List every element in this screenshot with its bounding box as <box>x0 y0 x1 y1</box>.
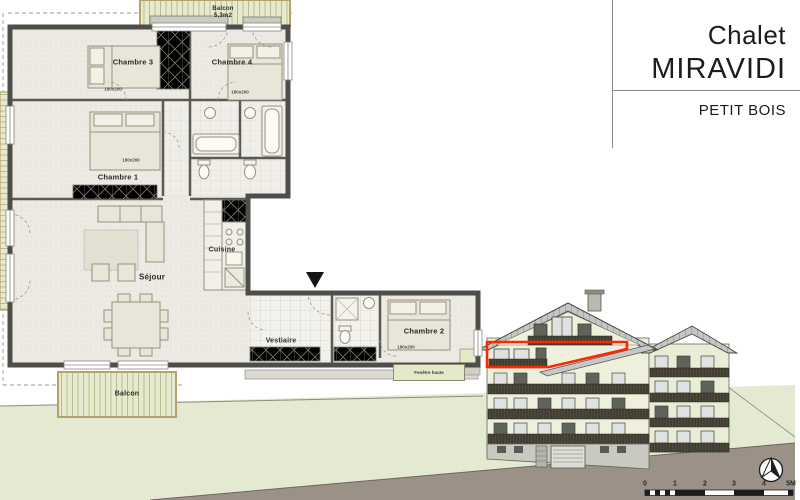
armchair <box>118 264 135 281</box>
title-block: Chalet MIRAVIDI <box>651 20 786 86</box>
balcony-bottom-label: Balcon <box>115 391 140 398</box>
title-unit: PETIT BOIS <box>699 102 786 119</box>
room-label-chambre-3: Chambre 3 <box>113 58 154 67</box>
shower <box>336 298 358 320</box>
scale-tick: 5M <box>786 481 796 488</box>
bed-size-label: 180x200 <box>122 158 140 163</box>
title-divider-horizontal <box>612 90 800 91</box>
title-name: MIRAVIDI <box>651 53 786 86</box>
scale-tick: 1 <box>673 481 677 488</box>
garage-door <box>551 446 585 468</box>
room-label-chambre-2: Chambre 2 <box>404 327 445 336</box>
washbasin <box>364 298 375 309</box>
title-project: Chalet <box>651 20 786 51</box>
room-label-chambre-4: Chambre 4 <box>212 58 253 67</box>
bed-size-label: 180x200 <box>231 90 249 95</box>
north-arrow-icon <box>760 458 783 482</box>
room-label-chambre-1: Chambre 1 <box>98 173 139 182</box>
toilet <box>198 160 210 179</box>
bed <box>88 46 160 88</box>
attic-balcony-railing <box>528 336 612 345</box>
scale-tick: 2 <box>703 481 707 488</box>
room-label-vestiaire: Vestiaire <box>266 338 297 345</box>
scale-tick: 4 <box>762 481 766 488</box>
dining-table <box>104 294 168 356</box>
chimney <box>588 292 601 311</box>
room-label-cuisine: Cuisine <box>209 247 236 254</box>
bathtub <box>262 106 282 156</box>
armchair <box>92 264 109 281</box>
bed-size-label: 180x200 <box>104 87 122 92</box>
bathtub <box>193 134 239 154</box>
scale-tick: 3 <box>732 481 736 488</box>
toilet <box>244 160 256 179</box>
bed-size-label: 180x200 <box>397 345 415 350</box>
bed <box>388 300 450 350</box>
balcony-top-label: Balcon 5,3m2 <box>212 6 233 20</box>
scale-tick: 0 <box>643 481 647 488</box>
window-note: Fenêtre haute <box>393 364 465 381</box>
entrance-arrow-icon <box>306 272 324 288</box>
room-label-sejour: Séjour <box>139 273 165 282</box>
elevation-drawing <box>478 290 737 469</box>
drawing-sheet: Chalet MIRAVIDI PETIT BOIS Balcon 5,3m2 … <box>0 0 800 500</box>
washbasin <box>245 108 256 119</box>
title-divider-vertical <box>612 0 613 148</box>
scale-bar <box>645 490 793 496</box>
toilet <box>339 326 351 344</box>
washbasin <box>205 108 216 119</box>
